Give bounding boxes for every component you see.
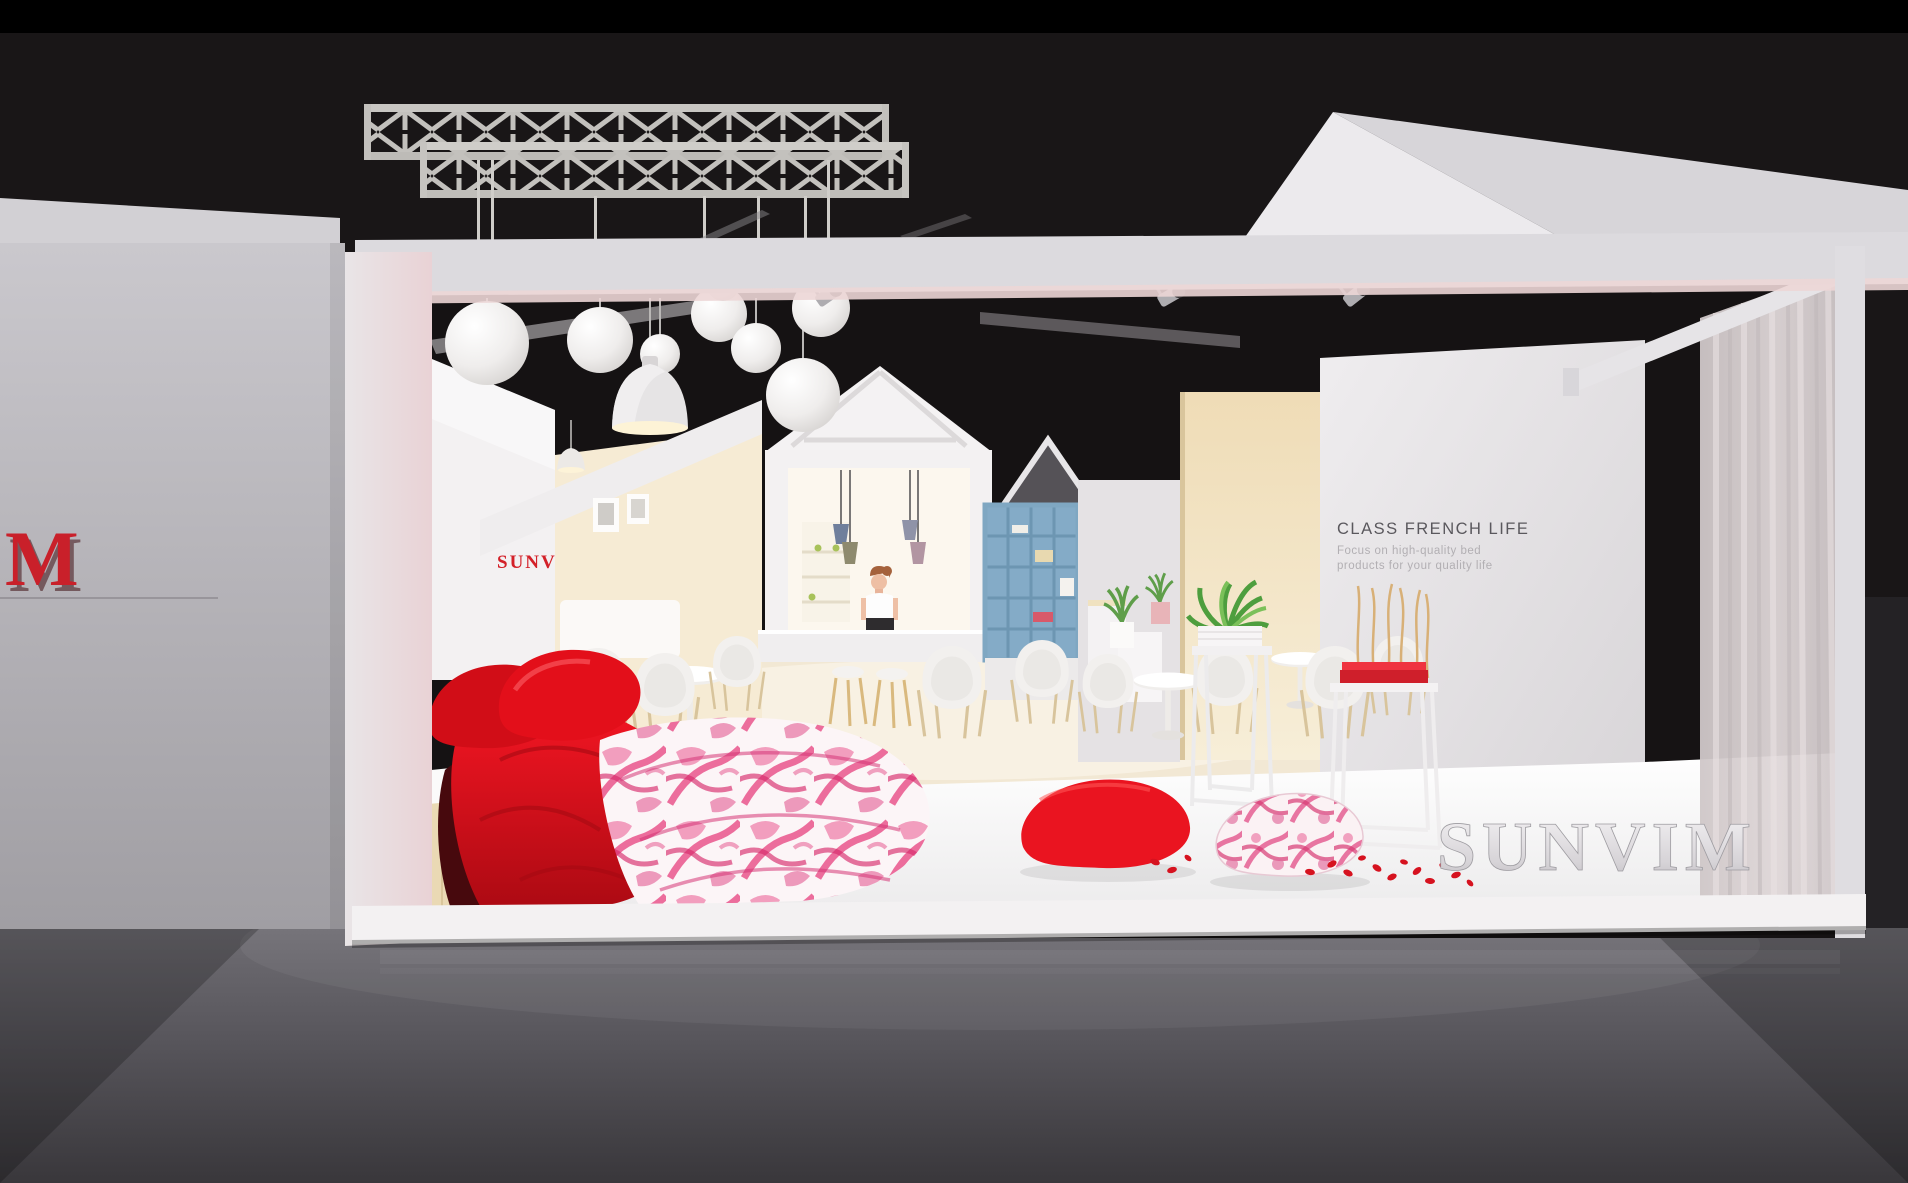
wood-panel-edge: [1180, 392, 1185, 760]
sphere-lamp: [731, 323, 781, 373]
green-decor: [833, 545, 840, 552]
wall-groove-line: [0, 597, 218, 599]
slogan-subtitle-line2: products for your quality life: [1337, 560, 1493, 572]
shelf-item-red: [1033, 612, 1053, 622]
hair-bun: [882, 566, 892, 576]
table-top: [1330, 683, 1438, 692]
sphere-lamp: [567, 307, 633, 373]
left-wall-letter-text: M: [5, 515, 79, 602]
counter-edge: [758, 630, 996, 634]
white-top: [864, 593, 895, 620]
left-wall-edge-shade: [330, 243, 345, 929]
booth-interior: SUNV: [360, 250, 1862, 938]
fern-planter: [1198, 626, 1262, 648]
picture-art: [598, 503, 614, 525]
floor-reflections: [380, 950, 1840, 974]
arm: [893, 598, 898, 620]
planter-pink: [1151, 602, 1170, 624]
planter-white: [1110, 622, 1134, 648]
green-decor: [815, 545, 822, 552]
frame-left-column: [345, 252, 432, 946]
slogan-heading: CLASS FRENCH LIFE: [1337, 520, 1529, 538]
display-partition: [1078, 480, 1180, 762]
sphere-lamp: [445, 301, 529, 385]
green-decor: [809, 594, 816, 601]
picture-art: [631, 499, 645, 518]
cafe-sofa: [560, 600, 680, 658]
beam-bracket: [1563, 368, 1579, 396]
exhibition-booth-render: SUNV: [0, 0, 1908, 1183]
red-tray-top: [1342, 662, 1426, 671]
panel-logo-text: SUNV: [497, 552, 557, 573]
shelf-item-beige: [1035, 550, 1053, 562]
top-black-bar: [0, 0, 1908, 33]
shelf-item: [1012, 525, 1028, 533]
red-tray: [1340, 670, 1428, 683]
sphere-lamp: [766, 358, 840, 432]
table-top: [1192, 646, 1272, 655]
left-neighbour-wall: M M: [0, 198, 345, 929]
shelf-item-white: [1060, 578, 1074, 596]
small-dome-glow: [558, 467, 584, 473]
slogan-subtitle-line1: Focus on high-quality bed: [1337, 545, 1481, 557]
head: [871, 574, 887, 590]
arm: [861, 598, 866, 620]
black-skirt: [866, 618, 894, 632]
floor-logo-3d-text: SUNVIM: [1437, 809, 1757, 886]
frame-right-column: [1835, 246, 1865, 938]
